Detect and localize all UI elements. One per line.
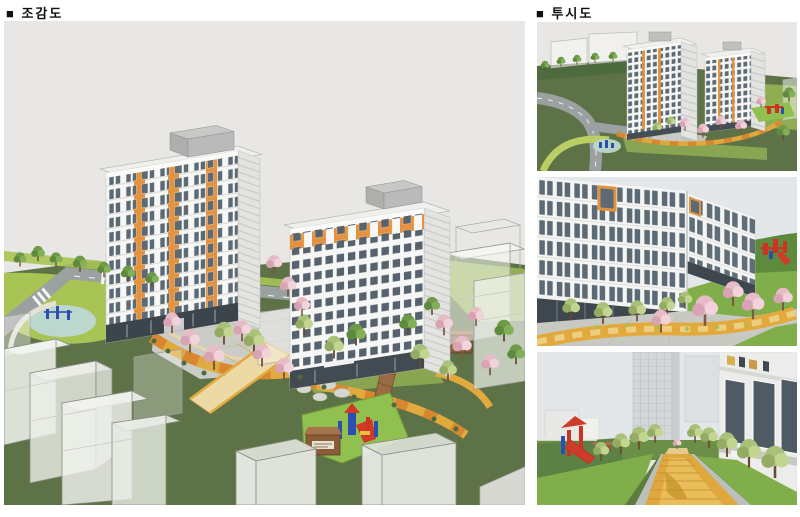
perspective-render-3	[537, 352, 797, 505]
section-label-perspective-view: ■ 투시도	[536, 3, 593, 22]
perspective-render-2	[537, 177, 797, 346]
aerial-render-illustration	[4, 21, 525, 505]
walkway-ground-illustration	[537, 352, 797, 505]
perspective-overview-illustration	[537, 22, 797, 171]
courtyard-closeup-illustration	[537, 177, 797, 346]
tower-2	[701, 42, 765, 132]
perspective-render-1	[537, 22, 797, 171]
section-label-aerial-view: ■ 조감도	[6, 3, 63, 22]
aerial-render	[4, 21, 525, 505]
presentation-board: ■ 조감도 ■ 투시도	[0, 0, 800, 517]
